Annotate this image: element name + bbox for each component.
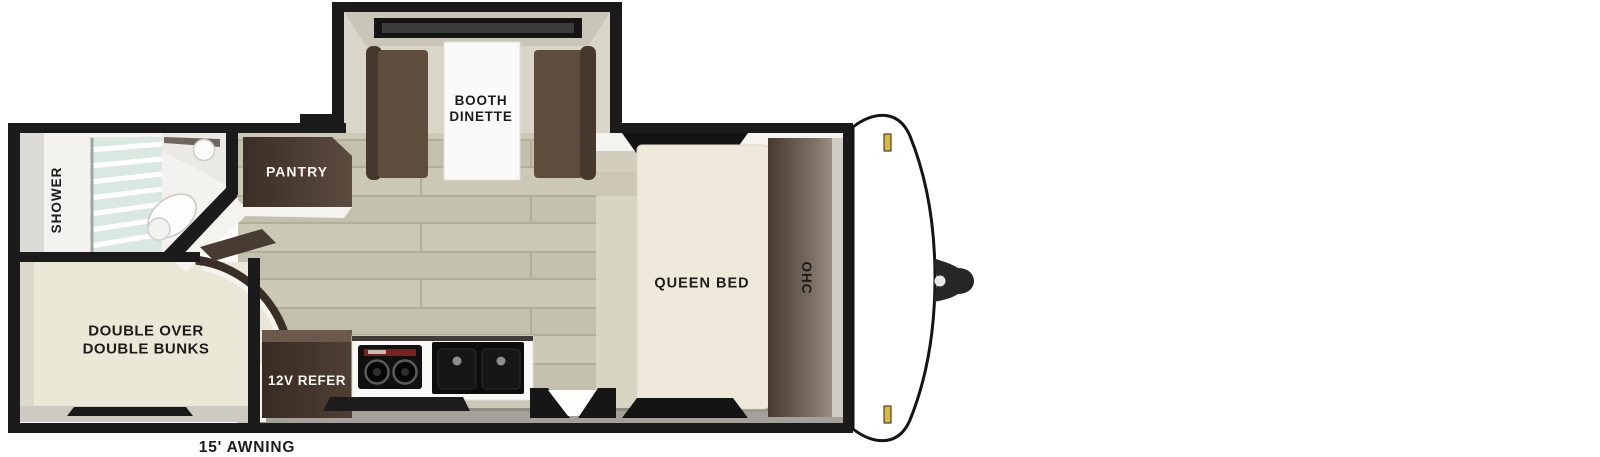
dinette-bench-left [366,46,428,180]
label-booth-dinette: BOOTH DINETTE [434,93,529,125]
main-entry-door [530,388,616,418]
label-queen-bed: QUEEN BED [654,275,749,292]
bunk-window [67,407,193,416]
label-awning: 15' AWNING [199,439,295,457]
booth-dinette-slideout [332,2,622,180]
bed-foot-window [622,398,748,418]
marker-light-top [884,134,891,151]
label-ohc: OHC [798,262,814,295]
floorplan-drawing [0,0,1600,457]
bathroom-sink [194,140,215,161]
marker-light-bottom [884,406,891,423]
label-shower: SHOWER [49,167,65,234]
bathroom-back-wall [18,133,44,254]
entry-step [323,397,470,411]
hitch-coupler [933,258,974,302]
label-pantry: PANTRY [266,164,328,181]
double-sink [432,342,524,394]
side-window [300,114,342,133]
floorplan-canvas: BOOTH DINETTE PANTRY SHOWER QUEEN BED OH… [0,0,1600,457]
dinette-bench-right [534,46,596,180]
label-bunks: DOUBLE OVER DOUBLE BUNKS [71,322,221,357]
cooktop [358,345,422,389]
front-cap [853,115,974,440]
label-refrigerator: 12V REFER [268,373,346,389]
